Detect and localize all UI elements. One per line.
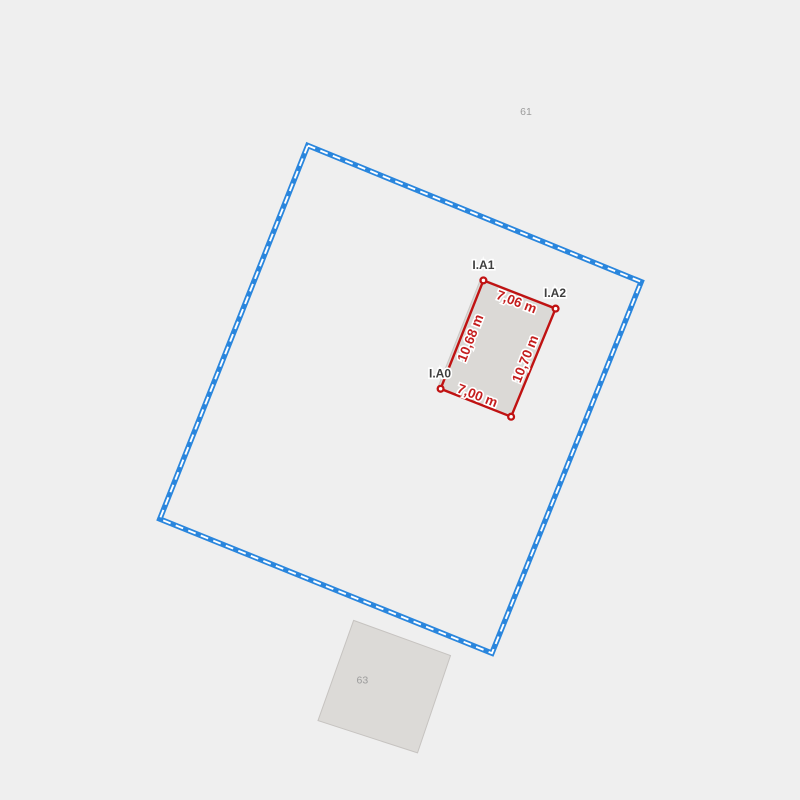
svg-text:I.A0: I.A0 bbox=[429, 367, 451, 381]
svg-text:63: 63 bbox=[357, 675, 369, 687]
svg-text:I.A1: I.A1 bbox=[472, 258, 494, 272]
svg-text:I.A2: I.A2 bbox=[544, 286, 566, 300]
svg-text:61: 61 bbox=[520, 106, 532, 118]
